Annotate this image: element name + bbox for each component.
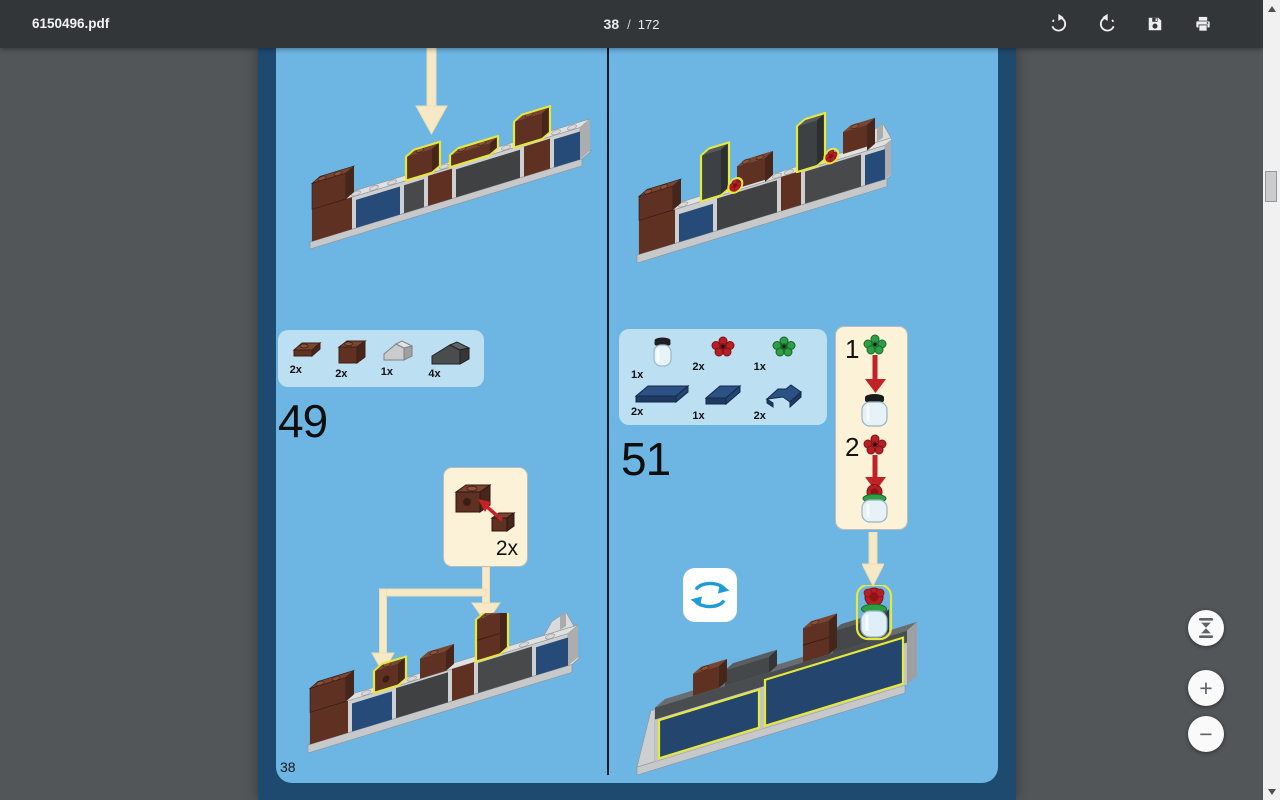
part-jar: 1x xyxy=(631,336,692,381)
step49-assembly-bottom-illustration xyxy=(300,613,580,773)
red-flower-icon xyxy=(711,336,735,360)
blue-corner-tile-icon xyxy=(763,381,805,409)
pdf-toolbar: 6150496.pdf 38/172 xyxy=(0,0,1263,48)
blue-tile-2x2-icon xyxy=(703,381,743,409)
jar-icon xyxy=(650,336,674,368)
fit-to-page-button[interactable] xyxy=(1188,610,1224,646)
rotate-clockwise-button[interactable] xyxy=(1043,8,1075,40)
step51-callout: 1 2 xyxy=(835,326,908,530)
part-blue-tile-2x2: 1x xyxy=(692,381,753,422)
toolbar-actions xyxy=(1043,8,1219,40)
column-divider xyxy=(607,48,609,775)
part-count: 1x xyxy=(381,366,393,378)
part-count: 1x xyxy=(631,369,643,381)
step51-assembly-bottom-illustration xyxy=(633,585,943,781)
vertical-scrollbar[interactable] xyxy=(1263,0,1280,800)
step49-callout-count: 2x xyxy=(496,537,518,561)
part-count: 2x xyxy=(692,361,704,373)
print-button[interactable] xyxy=(1187,8,1219,40)
save-button[interactable] xyxy=(1139,8,1171,40)
step51-placement-arrow xyxy=(862,532,884,588)
pdf-viewer-window: 6150496.pdf 38/172 xyxy=(0,0,1280,800)
zoom-in-button[interactable]: + xyxy=(1188,670,1224,706)
part-count: 1x xyxy=(692,410,704,422)
page-number-input[interactable]: 38 xyxy=(604,16,620,32)
part-gray-slope: 1x xyxy=(381,337,417,378)
part-blue-corner-tile: 2x xyxy=(754,381,815,422)
step51-number: 51 xyxy=(621,432,670,486)
part-green-flower: 1x xyxy=(754,336,815,381)
part-blue-tile-1x4: 2x xyxy=(631,381,692,422)
step49-assembly-top-illustration xyxy=(296,48,596,263)
pdf-viewport[interactable]: 2x 2x xyxy=(0,48,1263,800)
document-page-number: 38 xyxy=(280,759,296,775)
page-separator: / xyxy=(627,17,631,32)
instruction-page-panel: 2x 2x xyxy=(276,48,998,783)
zoom-out-button[interactable]: − xyxy=(1188,716,1224,752)
step51-assembly-top-illustration xyxy=(631,93,891,263)
brown-plate-icon xyxy=(290,337,324,363)
rotate-clockwise-icon xyxy=(1048,13,1070,35)
scroll-down-button[interactable] xyxy=(1263,783,1280,800)
minus-icon: − xyxy=(1199,723,1212,746)
rotate-counterclockwise-icon xyxy=(1096,13,1118,35)
step51-parts-box: 1x 2x xyxy=(619,329,827,425)
step49-callout: 2x xyxy=(443,467,528,567)
part-brown-plate: 2x xyxy=(290,337,324,376)
step49-number: 49 xyxy=(278,394,327,448)
part-red-flower: 2x xyxy=(692,336,753,381)
brown-brick-icon xyxy=(335,337,369,367)
page-total: 172 xyxy=(638,17,660,32)
part-dark-slope: 4x xyxy=(428,337,472,380)
part-brown-brick: 2x xyxy=(335,337,369,380)
part-count: 2x xyxy=(631,406,643,418)
gray-slope-icon xyxy=(381,337,417,365)
green-flower-icon xyxy=(772,336,796,360)
part-count: 4x xyxy=(428,368,440,380)
part-count: 1x xyxy=(754,361,766,373)
save-icon xyxy=(1145,14,1165,34)
scroll-up-button[interactable] xyxy=(1263,0,1280,17)
blue-tile-1x4-icon xyxy=(633,381,691,405)
print-icon xyxy=(1193,14,1213,34)
fit-to-page-icon xyxy=(1188,610,1224,646)
scrollbar-thumb[interactable] xyxy=(1265,171,1277,202)
part-count: 2x xyxy=(754,410,766,422)
pdf-page-38: 2x 2x xyxy=(258,48,1016,800)
rotate-counterclockwise-button[interactable] xyxy=(1091,8,1123,40)
step51-callout-illustration xyxy=(836,327,906,528)
scroll-up-icon xyxy=(1268,6,1276,12)
dark-slope-icon xyxy=(428,337,472,367)
part-count: 2x xyxy=(290,364,302,376)
plus-icon: + xyxy=(1199,677,1212,700)
part-count: 2x xyxy=(335,368,347,380)
scroll-down-icon xyxy=(1268,789,1276,795)
step49-parts-box: 2x 2x xyxy=(278,330,484,387)
